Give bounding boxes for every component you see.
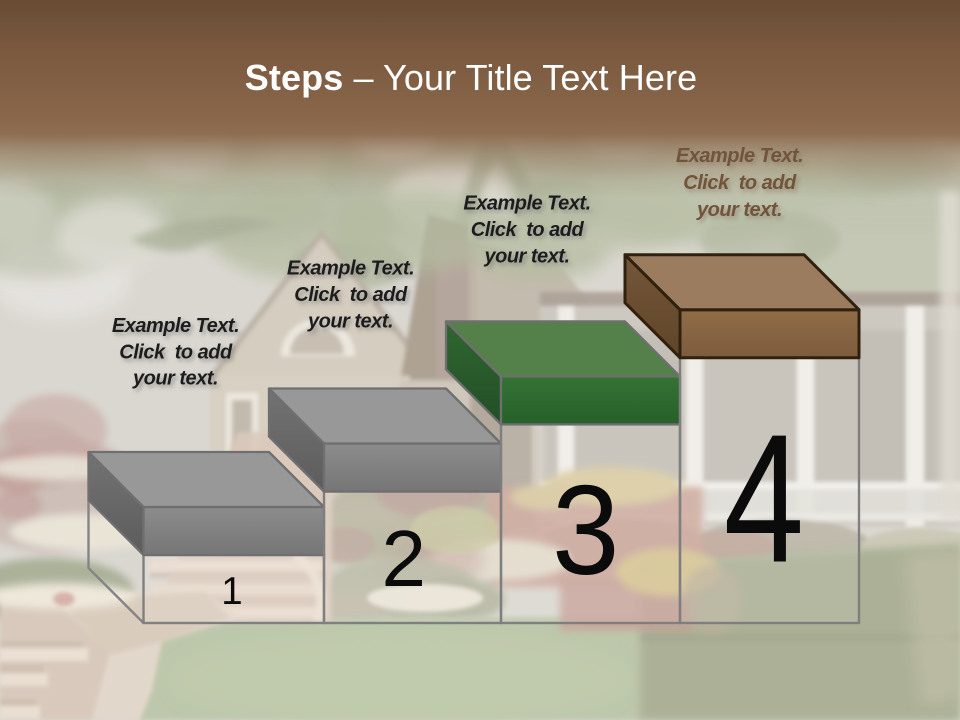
svg-text:Example Text.: Example Text. — [112, 315, 239, 337]
svg-text:Click to add: Click to add — [119, 341, 233, 363]
svg-text:1: 1 — [221, 570, 242, 613]
svg-text:Example Text.: Example Text. — [676, 145, 803, 167]
svg-text:Click to add: Click to add — [683, 172, 797, 194]
svg-text:Click to add: Click to add — [471, 219, 585, 241]
svg-text:your text.: your text. — [307, 310, 393, 332]
svg-text:Example Text.: Example Text. — [287, 258, 414, 280]
svg-text:your text.: your text. — [132, 368, 218, 390]
svg-text:2: 2 — [381, 514, 426, 603]
svg-text:your text.: your text. — [696, 199, 782, 221]
svg-text:Example Text.: Example Text. — [463, 193, 590, 215]
svg-text:Click to add: Click to add — [294, 284, 408, 306]
svg-text:3: 3 — [552, 459, 620, 601]
svg-text:4: 4 — [724, 396, 805, 601]
svg-text:your text.: your text. — [483, 245, 569, 267]
svg-text:Steps – Your Title Text Here: Steps – Your Title Text Here — [245, 57, 697, 98]
